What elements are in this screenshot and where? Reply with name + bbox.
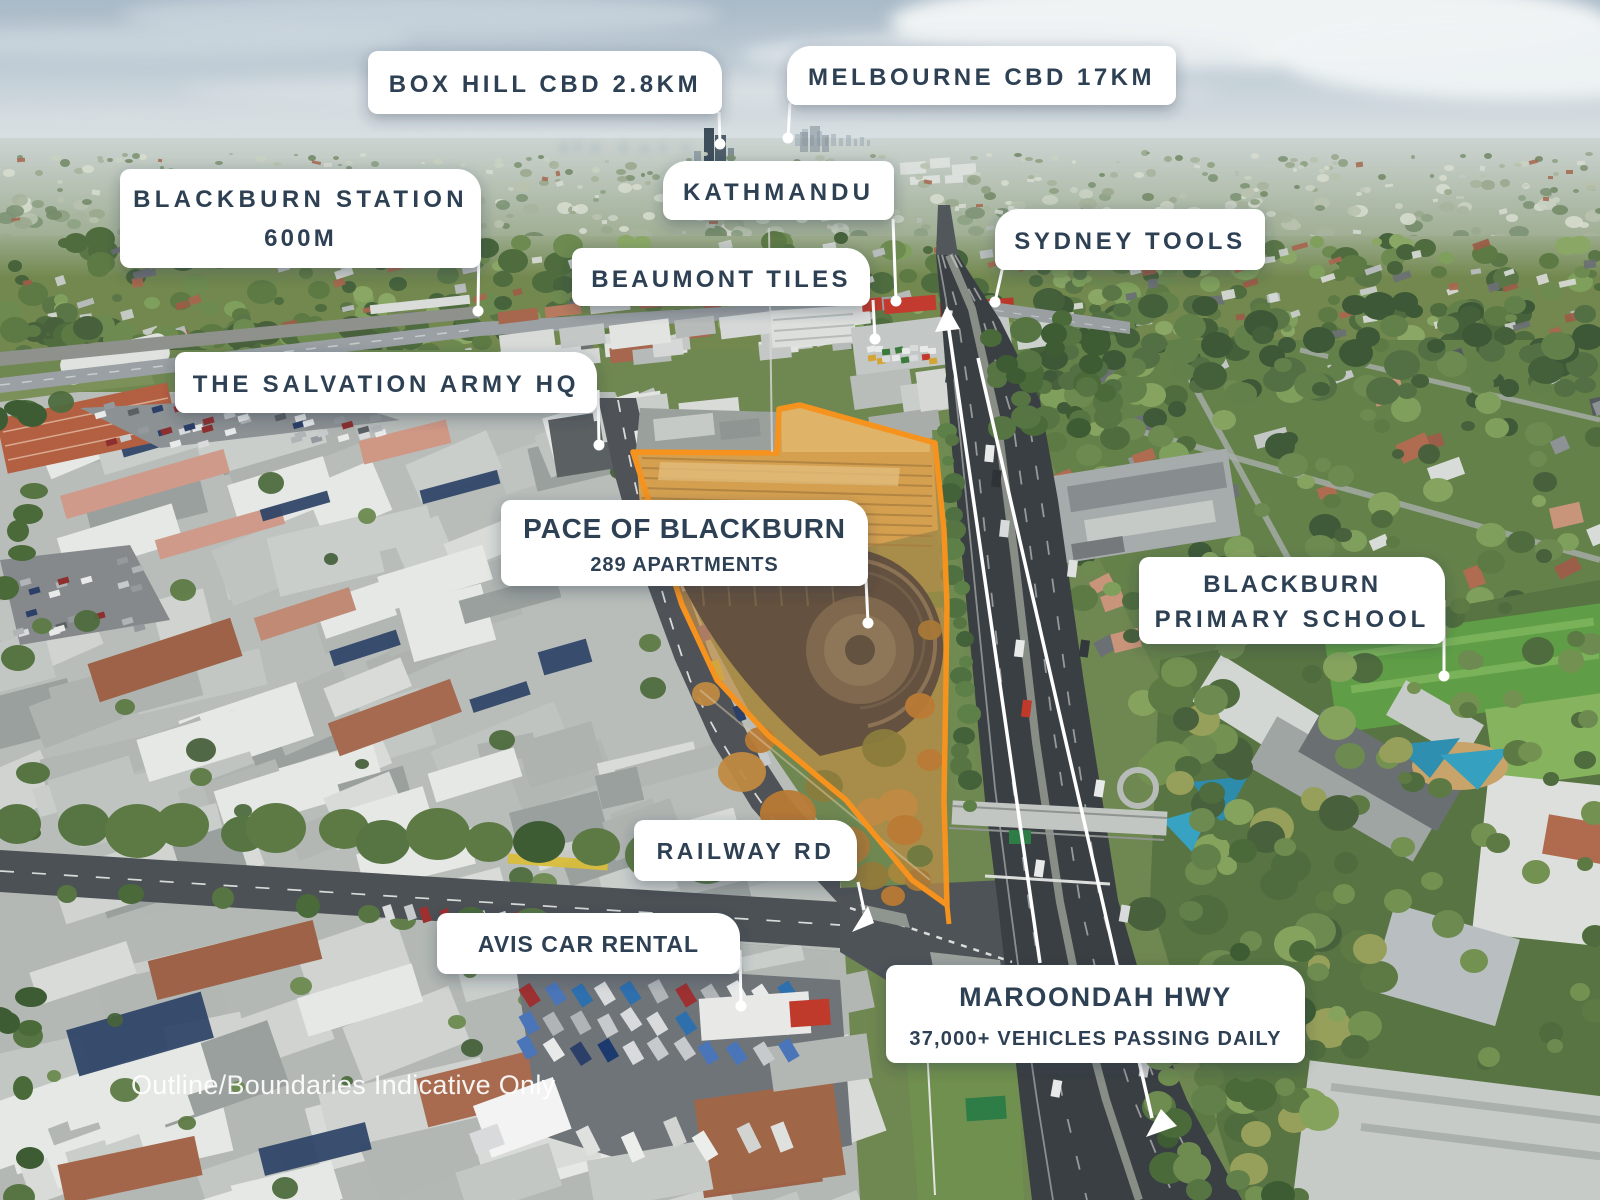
svg-text:SYDNEY TOOLS: SYDNEY TOOLS (1014, 228, 1246, 255)
svg-text:PRIMARY SCHOOL: PRIMARY SCHOOL (1155, 606, 1430, 633)
svg-text:BLACKBURN: BLACKBURN (1203, 571, 1381, 598)
svg-text:AVIS CAR RENTAL: AVIS CAR RENTAL (478, 931, 699, 957)
svg-text:MAROONDAH HWY: MAROONDAH HWY (959, 982, 1232, 1012)
svg-text:Outline/Boundaries Indicative: Outline/Boundaries Indicative Only (131, 1070, 556, 1100)
svg-text:289 APARTMENTS: 289 APARTMENTS (590, 554, 778, 576)
svg-text:PACE OF BLACKBURN: PACE OF BLACKBURN (523, 513, 846, 544)
svg-text:BLACKBURN STATION: BLACKBURN STATION (133, 186, 468, 213)
svg-text:THE SALVATION ARMY HQ: THE SALVATION ARMY HQ (193, 371, 579, 398)
svg-text:BOX HILL CBD 2.8KM: BOX HILL CBD 2.8KM (389, 71, 701, 98)
svg-text:BEAUMONT TILES: BEAUMONT TILES (591, 266, 851, 293)
svg-text:37,000+ VEHICLES PASSING DAILY: 37,000+ VEHICLES PASSING DAILY (909, 1028, 1281, 1050)
svg-text:600M: 600M (264, 225, 337, 252)
svg-text:KATHMANDU: KATHMANDU (683, 179, 874, 206)
svg-text:RAILWAY RD: RAILWAY RD (657, 838, 835, 864)
svg-text:MELBOURNE CBD 17KM: MELBOURNE CBD 17KM (808, 64, 1155, 91)
